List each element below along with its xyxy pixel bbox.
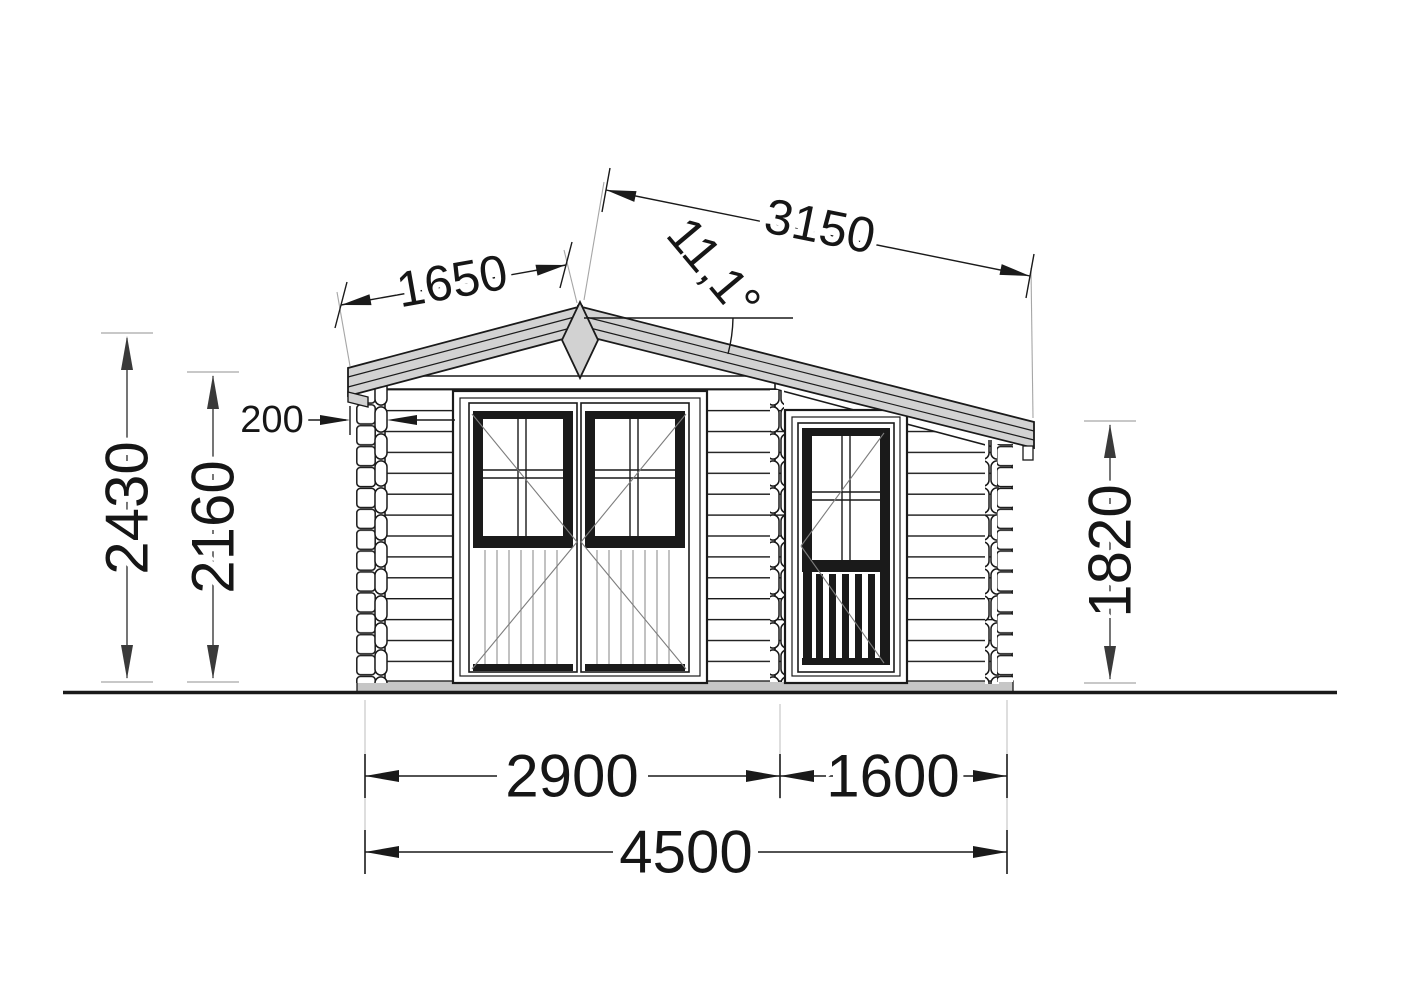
eaves-height-right-label: 1820 — [1077, 484, 1144, 617]
elevation-canvas: 11,1° 1650 3150 200 2430 — [0, 0, 1403, 992]
elevation-drawing: 11,1° 1650 3150 200 2430 — [0, 0, 1403, 992]
dim-ridge-height: 2430 — [94, 333, 161, 682]
main-section-width-label: 2900 — [505, 743, 638, 810]
dim-bottom-widths: 2900 1600 4500 — [365, 700, 1007, 886]
corner-logs-middle — [770, 390, 784, 682]
dim-eaves-height-right: 1820 — [1077, 421, 1144, 683]
dim-eaves-height-left: 2160 — [180, 372, 247, 682]
roof-angle-label: 11,1° — [656, 206, 772, 329]
corner-logs-right — [985, 440, 1013, 684]
roof-slope-left-label: 1650 — [392, 244, 511, 318]
double-door — [453, 391, 707, 683]
total-width-label: 4500 — [619, 819, 752, 886]
ridge-height-label: 2430 — [94, 441, 161, 574]
roof-slope-right-label: 3150 — [760, 187, 880, 264]
corner-logs-left — [356, 379, 388, 683]
double-door-right-leaf — [581, 403, 689, 672]
roof-overhang-label: 200 — [240, 399, 303, 441]
side-section-width-label: 1600 — [826, 743, 959, 810]
eaves-height-left-label: 2160 — [180, 460, 247, 593]
single-door — [785, 410, 907, 683]
double-door-left-leaf — [469, 403, 577, 672]
